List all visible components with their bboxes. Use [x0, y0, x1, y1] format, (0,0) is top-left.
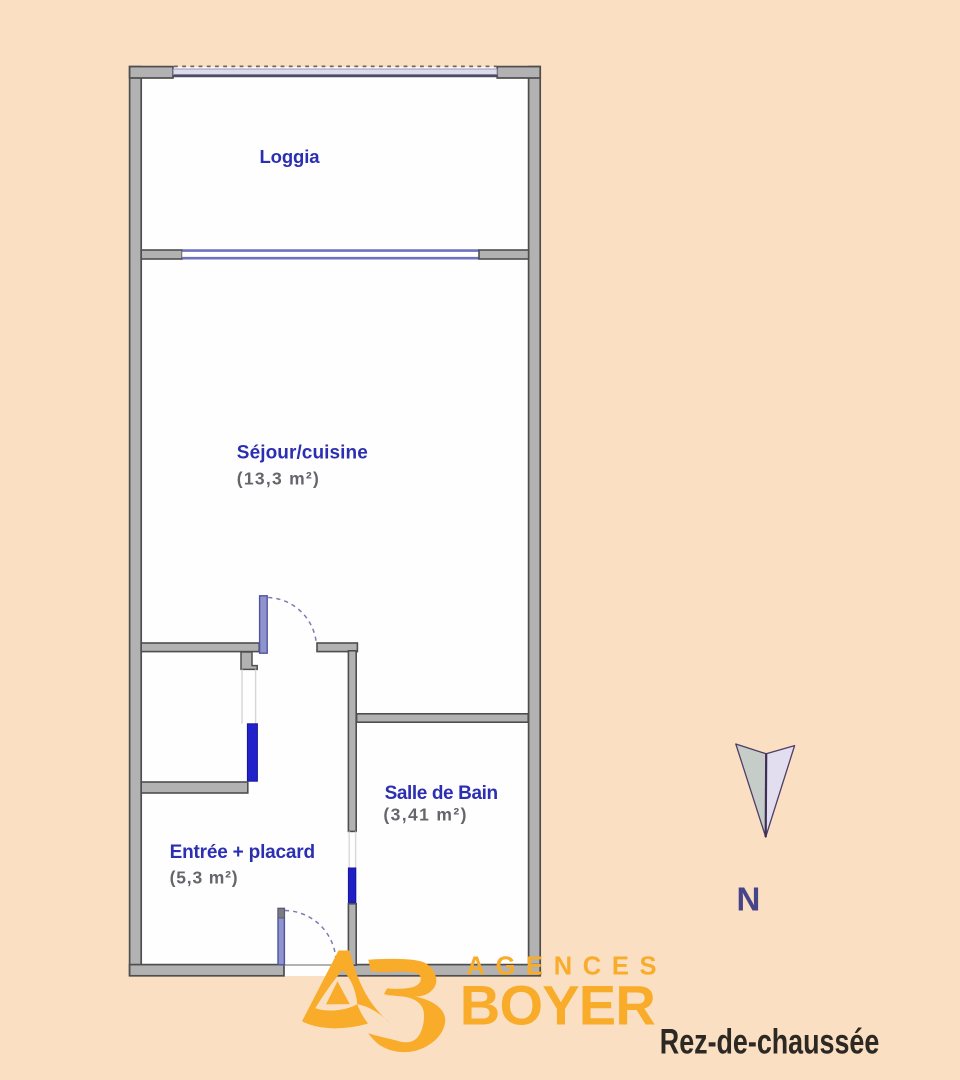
svg-text:N: N — [737, 881, 761, 918]
svg-text:Salle de Bain: Salle de Bain — [385, 783, 499, 804]
svg-text:Séjour/cuisine: Séjour/cuisine — [237, 443, 368, 464]
svg-text:BOYER: BOYER — [460, 974, 656, 1037]
svg-text:(5,3 m²): (5,3 m²) — [170, 868, 238, 888]
svg-text:Rez-de-chaussée: Rez-de-chaussée — [660, 1022, 879, 1061]
svg-text:Entrée + placard: Entrée + placard — [170, 842, 316, 863]
svg-text:Loggia: Loggia — [260, 146, 321, 167]
svg-text:(13,3 m²): (13,3 m²) — [237, 468, 319, 488]
svg-text:(3,41 m²): (3,41 m²) — [383, 805, 466, 825]
